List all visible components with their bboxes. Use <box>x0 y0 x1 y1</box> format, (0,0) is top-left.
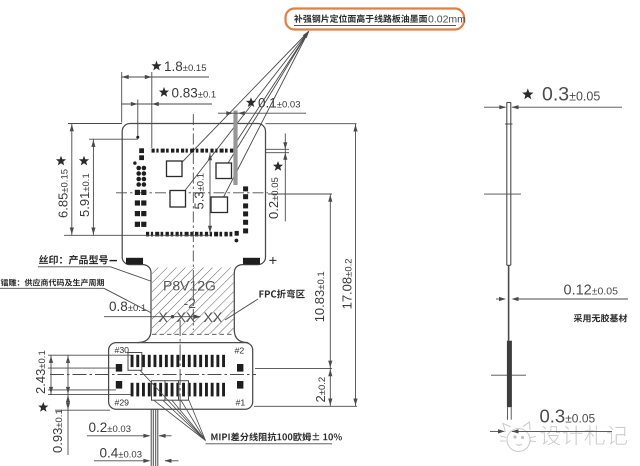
svg-text:0.12±0.05: 0.12±0.05 <box>564 283 619 299</box>
svg-text:#30: #30 <box>115 345 130 355</box>
svg-text:P8V12G: P8V12G <box>163 278 216 294</box>
svg-text:#29: #29 <box>115 398 130 408</box>
svg-text:XX: XX <box>204 309 223 325</box>
svg-text:#2: #2 <box>235 346 245 356</box>
svg-text:#1: #1 <box>236 398 246 408</box>
svg-text:XX: XX <box>177 309 196 325</box>
svg-text:X: X <box>159 309 169 325</box>
svg-text:0.02mm: 0.02mm <box>428 14 466 26</box>
